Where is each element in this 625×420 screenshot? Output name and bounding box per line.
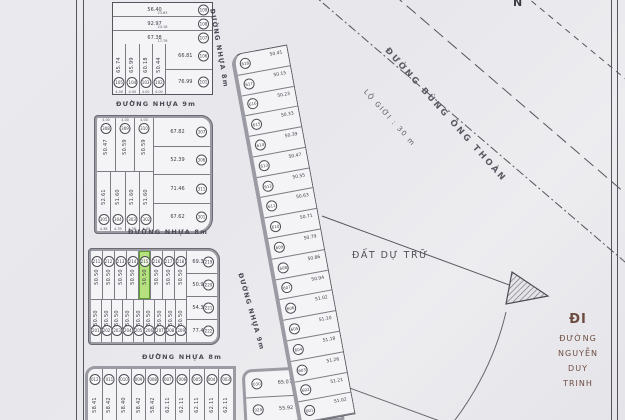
plot-area: 50.50 bbox=[114, 310, 120, 326]
plot-number-badge: 218 bbox=[175, 256, 186, 267]
parcel-curve-line bbox=[452, 312, 506, 420]
plot-area: 50.47 bbox=[103, 139, 109, 155]
plot: 62.11 004 bbox=[205, 369, 220, 420]
plot: 58.40 010 bbox=[117, 369, 132, 420]
plot: 50.50 212 bbox=[103, 251, 115, 299]
plot-width: 4.00 bbox=[121, 118, 129, 122]
plot-number-badge: 610 bbox=[269, 220, 282, 233]
plot: 50.50 209 bbox=[176, 300, 186, 342]
block-bottom-strip: 58.41 012 58.42 011 58.40 010 58.42 009 … bbox=[85, 366, 236, 420]
block-mid-left: 50.47 308 4.00 50.59 309 4.00 50.59 310 … bbox=[94, 115, 213, 234]
plot-number-badge: 604 bbox=[292, 343, 305, 356]
plot-area: 58.40 bbox=[121, 397, 127, 413]
plot-area: 67.62 bbox=[170, 214, 184, 220]
plot-area: 60.18 bbox=[143, 57, 149, 73]
plot-number-badge: 606 bbox=[284, 302, 297, 315]
block-top-left-right-col: 66.81 106 76.99 101 bbox=[166, 44, 212, 94]
plot-area: 51.18 bbox=[322, 337, 336, 344]
plot-area: 52.61 bbox=[101, 189, 107, 205]
plot-number-badge: 308 bbox=[101, 123, 112, 134]
plot-area: 50.23 bbox=[277, 91, 291, 98]
plot-number-badge: 107 bbox=[198, 32, 209, 43]
plot-number-badge: 219 bbox=[203, 257, 214, 268]
plot-area: 58.41 bbox=[92, 397, 98, 413]
plot-number-badge: 601 bbox=[303, 404, 316, 417]
plot-area: 50.59 bbox=[122, 139, 128, 155]
plot-dimension: 17.76 bbox=[157, 39, 167, 43]
plot: 77.46 222 bbox=[187, 320, 217, 342]
plot: 52.39 306 bbox=[154, 147, 210, 176]
plot-area: 62.11 bbox=[194, 397, 200, 413]
plot-number-badge: 106 bbox=[198, 51, 209, 62]
plot-number-badge: 208 bbox=[166, 325, 176, 336]
plot-area: 50.50 bbox=[146, 310, 152, 326]
block-lower-left-top-row: 50.50 211 50.50 212 50.50 213 50.50 214 … bbox=[91, 251, 186, 300]
plot: 67.62 301 bbox=[154, 204, 210, 232]
plot-number-badge: 007 bbox=[162, 374, 173, 385]
plot: 67.38 17.76 107 bbox=[113, 31, 212, 44]
plot: 50.50 203 bbox=[112, 300, 123, 342]
plot: 62.11 007 bbox=[161, 369, 176, 420]
plot-area: 50.50 bbox=[157, 310, 163, 326]
direction-street-word: ĐƯỜNG bbox=[550, 331, 606, 346]
plot-number-badge: 616 bbox=[246, 98, 259, 111]
plot: 60.18 103 4.00 bbox=[140, 44, 153, 94]
plot-area: 65.74 bbox=[116, 57, 122, 73]
plot: 50.50 213 bbox=[115, 251, 127, 299]
plot-number-badge: 006 bbox=[177, 374, 188, 385]
plot: 66.81 106 bbox=[166, 44, 212, 70]
plot: 50.50 202 bbox=[102, 300, 113, 342]
plot-area: 50.55 bbox=[292, 173, 306, 180]
plot: 50.50 215 bbox=[139, 251, 151, 299]
plot-number-badge: 307 bbox=[196, 126, 207, 137]
plot-number-badge: 618 bbox=[239, 57, 252, 70]
plot-width: 4.00 bbox=[142, 90, 150, 94]
plot-number-badge: 214 bbox=[127, 256, 138, 267]
plot: 67.82 307 bbox=[154, 118, 210, 147]
plot: 71.46 311 bbox=[154, 175, 210, 204]
plot-number-badge: 004 bbox=[206, 374, 217, 385]
plot-area: 71.46 bbox=[170, 186, 184, 192]
plot: 51.60 303 4.38 bbox=[126, 172, 140, 231]
plot-number-badge: 611 bbox=[265, 200, 278, 213]
plot-number-badge: 602 bbox=[299, 384, 312, 397]
direction-prefix: ĐI bbox=[550, 312, 606, 327]
plot-number-badge: 201 bbox=[91, 325, 101, 336]
plot-area: 50.71 bbox=[300, 214, 314, 221]
plot: 76.99 101 bbox=[166, 70, 212, 95]
plot-area: 50.50 bbox=[94, 269, 100, 285]
plot: 58.42 009 bbox=[132, 369, 147, 420]
plot-area: 50.39 bbox=[285, 132, 299, 139]
plot-width: 4.00 bbox=[140, 118, 148, 122]
plot-number-badge: 211 bbox=[91, 256, 102, 267]
plot-number-badge: 202 bbox=[102, 325, 112, 336]
street-label-top-9m: ĐƯỜNG NHỰA 9m bbox=[116, 100, 196, 108]
plot-number-badge: 217 bbox=[163, 256, 174, 267]
plot-width: 4.38 bbox=[100, 227, 108, 231]
block-top-left: 56.40 23.63 109 92.97 24.16 108 67.38 17… bbox=[112, 2, 213, 95]
plot-number-badge: 212 bbox=[103, 256, 114, 267]
plot-number-badge: 303 bbox=[127, 214, 138, 225]
direction-text-block: ĐI ĐƯỜNG NGUYỄN DUY TRINH bbox=[550, 312, 606, 391]
plot-number-badge: 104 bbox=[127, 77, 138, 88]
block-lower-left-bottom-row: 50.50 201 50.50 202 50.50 203 50.50 204 … bbox=[91, 300, 186, 342]
plot: 58.41 012 bbox=[88, 369, 103, 420]
plot-area: 62.11 bbox=[165, 397, 171, 413]
plot: 58.42 011 bbox=[103, 369, 118, 420]
plot-number-badge: 204 bbox=[123, 325, 133, 336]
plot-area: 50.50 bbox=[142, 269, 148, 285]
plot-number-badge: 213 bbox=[115, 256, 126, 267]
compass-north-icon: N bbox=[513, 0, 522, 9]
plot-area: 58.42 bbox=[106, 397, 112, 413]
plot-number-badge: 105 bbox=[114, 77, 125, 88]
plot-area: 62.11 bbox=[179, 397, 185, 413]
plot: 69.35 219 bbox=[187, 251, 217, 274]
plot-number-badge: 309 bbox=[120, 123, 131, 134]
plot: 50.50 206 bbox=[144, 300, 155, 342]
block-mid-left-top-row: 50.47 308 4.00 50.59 309 4.00 50.59 310 … bbox=[97, 118, 153, 172]
plot-area: 51.10 bbox=[319, 316, 333, 323]
plot: 50.44 102 4.00 bbox=[153, 44, 165, 94]
plot-area: 52.39 bbox=[170, 157, 184, 163]
plot-number-badge: 009 bbox=[133, 374, 144, 385]
plot-area: 50.44 bbox=[156, 57, 162, 73]
plot-area: 50.50 bbox=[93, 310, 99, 326]
plot: 56.40 23.63 109 bbox=[113, 3, 212, 17]
plot-area: 50.15 bbox=[273, 71, 287, 78]
plot: 62.11 003 bbox=[219, 369, 233, 420]
plot-number-badge: 304 bbox=[112, 214, 123, 225]
plot-number-badge: 609 bbox=[273, 241, 286, 254]
plot-area: 50.47 bbox=[288, 153, 302, 160]
plot-area: 50.50 bbox=[136, 310, 142, 326]
plot-number-badge: 608 bbox=[277, 261, 290, 274]
plot-number-badge: 030 bbox=[251, 378, 263, 390]
plot-number-badge: 003 bbox=[221, 374, 232, 385]
plot-area: 66.81 bbox=[178, 53, 192, 59]
plot-area: 50.50 bbox=[166, 269, 172, 285]
plot-number-badge: 029 bbox=[252, 404, 264, 416]
plot-area: 50.50 bbox=[154, 269, 160, 285]
plot-area: 50.50 bbox=[118, 269, 124, 285]
plot: 50.50 208 bbox=[166, 300, 177, 342]
plot-area: 50.50 bbox=[178, 269, 184, 285]
plot-number-badge: 008 bbox=[148, 374, 159, 385]
plot-area: 50.50 bbox=[125, 310, 131, 326]
plot-area: 51.60 bbox=[115, 189, 121, 205]
plot-number-badge: 603 bbox=[296, 363, 309, 376]
direction-street-word: TRINH bbox=[550, 376, 606, 391]
plot-area: 55.92 bbox=[279, 405, 294, 412]
plot-area: 50.50 bbox=[178, 310, 184, 326]
street-label-mid-8m: ĐƯỜNG NHỰA 8m bbox=[128, 228, 208, 236]
plot: 50.50 217 bbox=[163, 251, 175, 299]
plot-number-badge: 209 bbox=[176, 325, 186, 336]
plot-number-badge: 011 bbox=[104, 374, 115, 385]
plot-number-badge: 301 bbox=[196, 212, 207, 223]
block-top-left-vplots: 65.74 105 4.00 65.99 104 4.00 60.18 103 … bbox=[113, 44, 166, 94]
plot-area: 50.50 bbox=[106, 269, 112, 285]
plot: 50.59 309 4.00 bbox=[116, 118, 135, 171]
plot-area: 58.42 bbox=[136, 397, 142, 413]
block-top-left-hrows: 56.40 23.63 109 92.97 24.16 108 67.38 17… bbox=[113, 3, 212, 44]
plot-dimension: 23.63 bbox=[157, 11, 167, 15]
plot-area: 76.99 bbox=[178, 79, 192, 85]
plot-dimension: 24.16 bbox=[157, 25, 167, 29]
plot-width: 4.39 bbox=[114, 227, 122, 231]
plot-number-badge: 216 bbox=[151, 256, 162, 267]
plot: 58.42 008 bbox=[146, 369, 161, 420]
plot-area: 62.11 bbox=[209, 397, 215, 413]
plot-area: 50.63 bbox=[296, 193, 310, 200]
plot-area: 50.59 bbox=[141, 139, 147, 155]
plot: 50.50 214 bbox=[127, 251, 139, 299]
plot: 50.47 308 4.00 bbox=[97, 118, 116, 171]
plot-area: 67.82 bbox=[170, 129, 184, 135]
direction-street-word: NGUYỄN bbox=[550, 346, 606, 361]
block-mid-left-bottom-row: 52.61 305 4.38 51.60 304 4.39 51.60 303 … bbox=[97, 172, 153, 231]
plot: 50.50 216 bbox=[151, 251, 163, 299]
plot-area: 50.94 bbox=[311, 275, 325, 282]
plot-number-badge: 102 bbox=[153, 77, 164, 88]
block-lower-left: 50.50 211 50.50 212 50.50 213 50.50 214 … bbox=[88, 248, 220, 345]
block-lower-left-right-col: 69.35 219 50.91 220 54.36 221 77.46 222 bbox=[187, 251, 217, 342]
plot-number-badge: 302 bbox=[141, 214, 152, 225]
plot-area: 51.60 bbox=[143, 189, 149, 205]
block-mid-left-right-col: 67.82 307 52.39 306 71.46 311 67.62 301 bbox=[154, 118, 210, 231]
plot-number-badge: 012 bbox=[89, 374, 100, 385]
plot-number-badge: 101 bbox=[198, 76, 209, 87]
plot-number-badge: 613 bbox=[258, 159, 271, 172]
plot-number-badge: 222 bbox=[203, 326, 214, 337]
plot-area: 50.79 bbox=[303, 234, 317, 241]
plot: 50.50 211 bbox=[91, 251, 103, 299]
plot: 62.11 006 bbox=[176, 369, 191, 420]
plot: 50.50 201 bbox=[91, 300, 102, 342]
plot-area: 50.86 bbox=[307, 255, 321, 262]
plot-number-badge: 207 bbox=[155, 325, 165, 336]
plot: 50.59 310 4.00 bbox=[135, 118, 153, 171]
plot-area: 62.11 bbox=[223, 397, 229, 413]
street-label-lower-8m: ĐƯỜNG NHỰA 8m bbox=[142, 353, 222, 361]
plot: 50.50 207 bbox=[155, 300, 166, 342]
direction-street-word: DUY bbox=[550, 361, 606, 376]
plot: 62.11 005 bbox=[190, 369, 205, 420]
plot-number-badge: 103 bbox=[140, 77, 151, 88]
plot-area: 50.50 bbox=[130, 269, 136, 285]
plot: 92.97 24.16 108 bbox=[113, 17, 212, 31]
cadastral-map: N 56.40 23.63 109 92.97 24.16 108 67.38 … bbox=[0, 0, 625, 420]
plot-area: 51.02 bbox=[334, 398, 348, 405]
plot-number-badge: 310 bbox=[139, 123, 150, 134]
plot: 51.60 302 4.59 bbox=[140, 172, 153, 231]
plot-width: 4.00 bbox=[155, 90, 163, 94]
plot-number-badge: 605 bbox=[288, 322, 301, 335]
plot-number-badge: 615 bbox=[250, 118, 263, 131]
plot: 50.50 205 bbox=[134, 300, 145, 342]
plot-number-badge: 607 bbox=[281, 282, 294, 295]
plot-number-badge: 010 bbox=[118, 374, 129, 385]
plot-number-badge: 221 bbox=[203, 303, 214, 314]
plot-number-badge: 612 bbox=[262, 179, 275, 192]
plot-area: 65.99 bbox=[129, 57, 135, 73]
plot-area: 51.02 bbox=[315, 296, 329, 303]
plot-number-badge: 205 bbox=[134, 325, 144, 336]
plot-area: 51.21 bbox=[330, 377, 344, 384]
plot-area: 50.33 bbox=[281, 112, 295, 119]
plot-number-badge: 005 bbox=[191, 374, 202, 385]
plot: 50.50 204 bbox=[123, 300, 134, 342]
plot-width: 4.00 bbox=[128, 90, 136, 94]
plot-number-badge: 305 bbox=[98, 214, 109, 225]
plot-number-badge: 617 bbox=[243, 77, 256, 90]
direction-arrowhead-icon bbox=[506, 272, 548, 304]
plot-number-badge: 108 bbox=[198, 18, 209, 29]
plot-width: 4.00 bbox=[102, 118, 110, 122]
plot-number-badge: 220 bbox=[203, 280, 214, 291]
plot: 52.61 305 4.38 bbox=[97, 172, 111, 231]
plot: 51.60 304 4.39 bbox=[111, 172, 125, 231]
plot-width: 4.00 bbox=[115, 90, 123, 94]
plot-number-badge: 306 bbox=[196, 155, 207, 166]
plot-number-badge: 311 bbox=[196, 183, 207, 194]
plot: 50.50 218 bbox=[175, 251, 186, 299]
plot-area: 50.41 bbox=[269, 50, 283, 57]
reserve-land-label: ĐẤT DỰ TRỮ bbox=[352, 250, 429, 261]
plot: 65.99 104 4.00 bbox=[126, 44, 139, 94]
plot: 54.36 221 bbox=[187, 297, 217, 320]
plot-number-badge: 614 bbox=[254, 139, 267, 152]
plot-number-badge: 206 bbox=[144, 325, 154, 336]
plot: 65.74 105 4.00 bbox=[113, 44, 126, 94]
plot-number-badge: 215 bbox=[139, 256, 150, 267]
plot-number-badge: 203 bbox=[112, 325, 122, 336]
plot-area: 50.50 bbox=[168, 310, 174, 326]
plot-area: 58.42 bbox=[150, 397, 156, 413]
plot-area: 51.26 bbox=[326, 357, 340, 364]
plot-area: 50.50 bbox=[104, 310, 110, 326]
plot-area: 51.60 bbox=[129, 189, 135, 205]
plot: 50.91 220 bbox=[187, 274, 217, 297]
road-far-boundary-line bbox=[523, 0, 625, 86]
